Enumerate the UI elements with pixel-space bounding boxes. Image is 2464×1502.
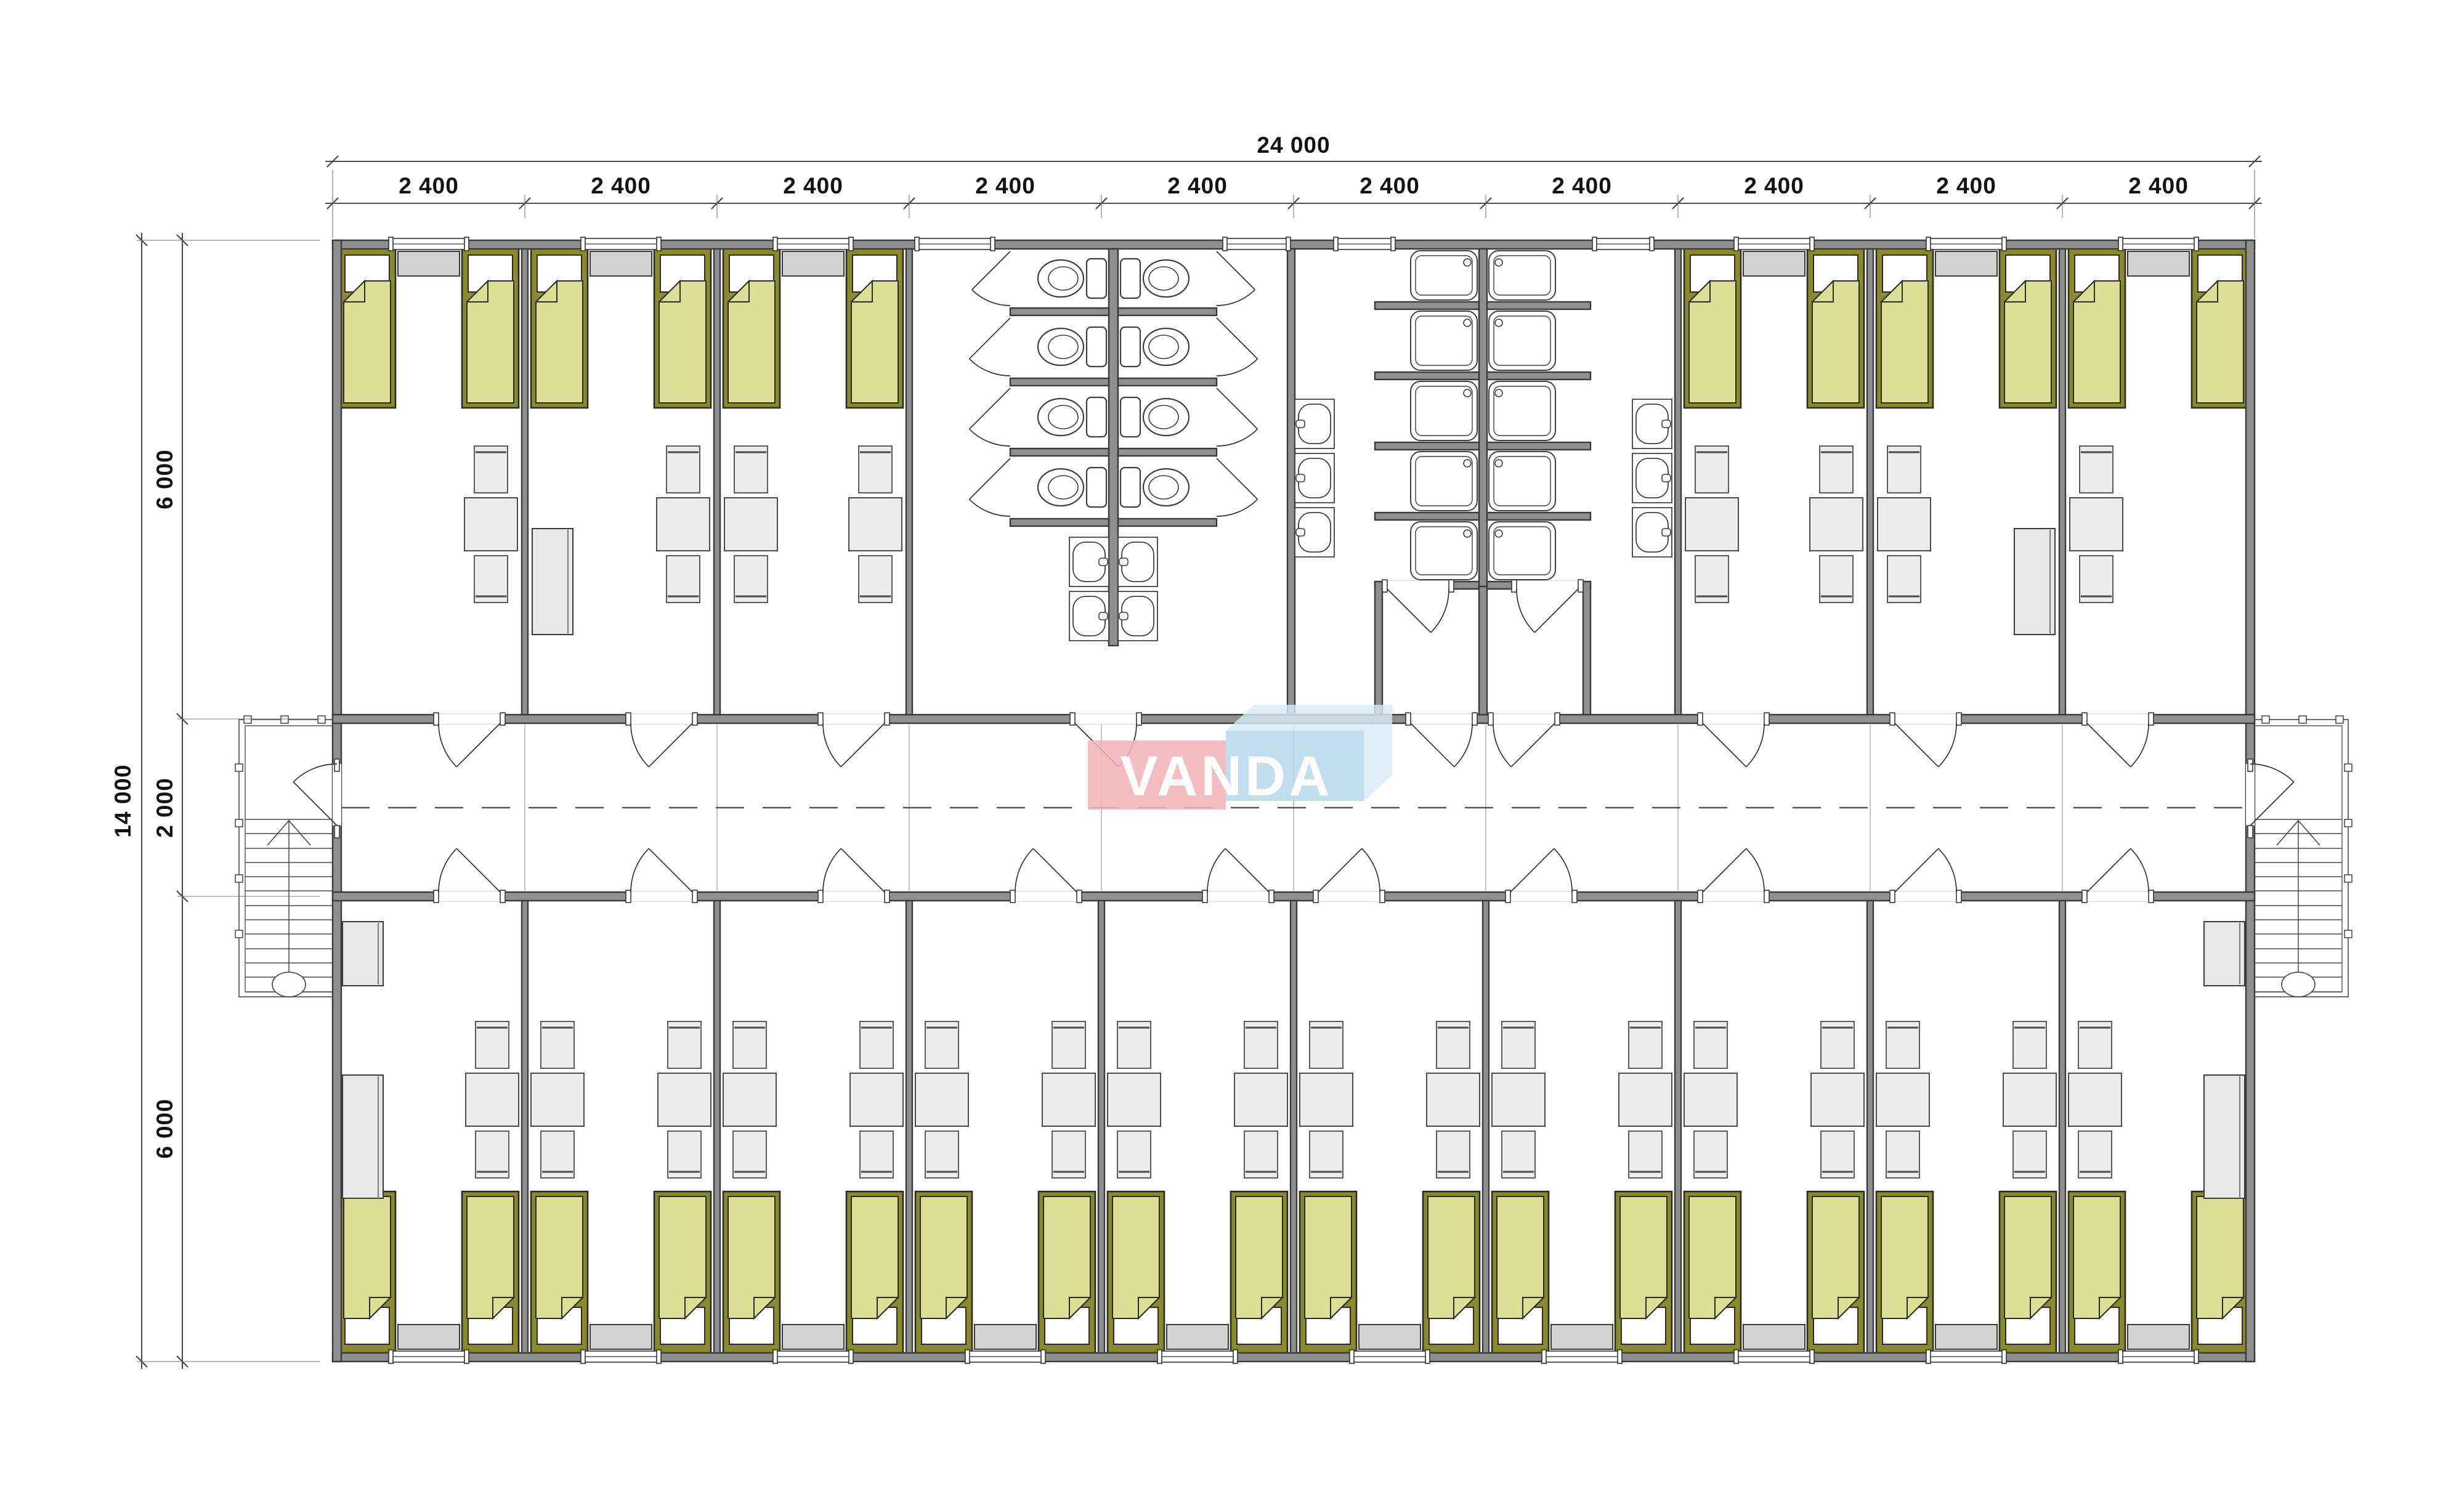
chair xyxy=(541,1131,574,1178)
door-leaf xyxy=(1217,318,1257,359)
door-leaf xyxy=(1225,848,1269,892)
door-jamb xyxy=(1512,580,1517,592)
door-jamb xyxy=(500,713,505,725)
door-jamb xyxy=(434,890,439,903)
door-opening xyxy=(1895,891,1956,901)
stair-post xyxy=(235,930,243,938)
door-jamb xyxy=(1472,713,1477,725)
door-swing-arc xyxy=(2131,723,2149,767)
window-jamb xyxy=(1542,1350,1546,1363)
bed xyxy=(1684,246,1741,408)
partition-wall-bottom xyxy=(1291,901,1297,1353)
door-opening xyxy=(1493,714,1555,724)
partition-wall-top xyxy=(714,249,720,715)
door-leaf xyxy=(970,458,1010,499)
shower-tray xyxy=(1411,452,1477,511)
chair xyxy=(1052,1021,1085,1068)
wash-basin xyxy=(1632,508,1672,557)
wash-basin xyxy=(1632,453,1672,503)
stair-newel-circle xyxy=(272,972,306,997)
table xyxy=(657,498,710,551)
dimension-label: 2 400 xyxy=(1744,173,1804,198)
window-jamb xyxy=(1350,1350,1354,1363)
chair xyxy=(1695,446,1728,493)
door-leaf xyxy=(970,318,1010,359)
bed xyxy=(1423,1191,1480,1353)
window-jamb xyxy=(2194,1350,2199,1363)
bed xyxy=(846,246,903,408)
stair-post xyxy=(2344,764,2352,771)
dimension-label: 6 000 xyxy=(152,1098,177,1159)
radiator xyxy=(1743,251,1805,276)
bed xyxy=(723,246,780,408)
door-jamb xyxy=(1698,890,1703,903)
window xyxy=(2118,1350,2199,1363)
wc-shower-dividing-wall xyxy=(1287,249,1295,715)
chair xyxy=(1820,446,1853,493)
chair xyxy=(1117,1021,1151,1068)
radiator xyxy=(782,251,844,276)
shower-divider-wall xyxy=(1375,442,1479,450)
door-jamb xyxy=(1956,713,1961,725)
window-jamb xyxy=(849,237,853,251)
door-opening xyxy=(1895,714,1956,724)
vestibule-wall xyxy=(1583,582,1591,715)
shower-tray xyxy=(1411,311,1477,370)
stair-post xyxy=(2344,819,2352,827)
floor-plan-canvas: 24 0002 4002 4002 4002 4002 4002 4002 40… xyxy=(0,0,2464,1502)
wardrobe-body xyxy=(342,922,383,986)
door-swing-arc xyxy=(293,764,337,782)
window xyxy=(581,237,661,251)
door-swing-arc xyxy=(439,723,456,767)
bed xyxy=(654,1191,711,1353)
door-jamb xyxy=(1578,580,1583,592)
bed xyxy=(1807,246,1864,408)
table xyxy=(2070,498,2123,551)
door-jamb xyxy=(2248,826,2253,838)
window-jamb xyxy=(2118,1350,2123,1363)
door-jamb xyxy=(1506,890,1510,903)
door-jamb xyxy=(885,890,890,903)
radiator xyxy=(1359,1325,1420,1349)
door-opening xyxy=(1075,714,1137,724)
door-swing-arc xyxy=(970,359,1010,376)
partition-wall-bottom xyxy=(1483,901,1489,1353)
door-swing-arc xyxy=(1517,589,1534,633)
toilet-bowl xyxy=(1143,399,1189,436)
door-jamb xyxy=(1555,713,1560,725)
chair xyxy=(1502,1131,1535,1178)
door-leaf xyxy=(1703,723,1746,767)
door-opening xyxy=(2087,714,2149,724)
table xyxy=(464,498,517,551)
door-swing-arc xyxy=(1015,848,1033,892)
window-jamb xyxy=(1041,1350,1045,1363)
wardrobe-body xyxy=(532,529,573,635)
stair-enclosure-outer xyxy=(239,720,333,997)
chair xyxy=(1437,1021,1470,1068)
window xyxy=(1926,1350,2006,1363)
window xyxy=(1157,1350,1238,1363)
dimension-label: 2 400 xyxy=(975,173,1035,198)
door-leaf xyxy=(456,723,500,767)
table xyxy=(724,498,777,551)
window-jamb xyxy=(2002,1350,2006,1363)
window-jamb xyxy=(464,237,469,251)
bed xyxy=(531,1191,588,1353)
window-jamb xyxy=(849,1350,853,1363)
bed xyxy=(1684,1191,1741,1353)
door-swing-arc xyxy=(1217,429,1257,446)
dimension-label: 2 000 xyxy=(152,777,177,838)
window-jamb xyxy=(1810,237,1814,251)
toilet-cistern xyxy=(1121,259,1140,298)
door-swing-arc xyxy=(972,290,1010,306)
toilet-cistern xyxy=(1121,327,1140,367)
radiator xyxy=(1935,1325,1997,1349)
shower-divider-wall xyxy=(1487,442,1591,450)
chair xyxy=(1887,446,1921,493)
window xyxy=(1926,237,2006,251)
door-swing-arc xyxy=(823,723,841,767)
bed xyxy=(1615,1191,1672,1353)
chair xyxy=(1310,1131,1343,1178)
door-opening xyxy=(1510,891,1572,901)
window-jamb xyxy=(1233,1350,1238,1363)
wardrobe-body xyxy=(342,1075,383,1198)
vestibule-center-wall xyxy=(1479,587,1487,715)
window-jamb xyxy=(1223,237,1227,251)
table xyxy=(1042,1073,1095,1126)
window xyxy=(389,1350,469,1363)
toilet-bowl xyxy=(1143,328,1189,365)
window-jamb xyxy=(915,237,919,251)
door-swing-arc xyxy=(2250,764,2294,782)
wash-basin xyxy=(1632,399,1672,449)
door-leaf xyxy=(649,848,692,892)
window-jamb xyxy=(1157,1350,1162,1363)
shower-tray xyxy=(1489,311,1555,370)
wc-stall-wall xyxy=(1010,378,1109,386)
wardrobe xyxy=(2204,922,2245,986)
window xyxy=(965,1350,1045,1363)
bed xyxy=(2069,246,2125,408)
door-jamb xyxy=(818,890,823,903)
chair xyxy=(860,1131,893,1178)
door-swing-arc xyxy=(631,848,649,892)
wc-stall-wall xyxy=(1118,449,1217,456)
door-leaf xyxy=(1033,848,1077,892)
radiator xyxy=(398,251,460,276)
door-jamb xyxy=(2149,890,2154,903)
chair xyxy=(1694,1131,1727,1178)
door-jamb xyxy=(1698,713,1703,725)
stair-enclosure-outer xyxy=(2255,720,2348,997)
door-jamb xyxy=(1382,580,1387,592)
door-swing-arc xyxy=(970,429,1010,446)
shower-tray xyxy=(1489,381,1555,440)
stair-post xyxy=(318,716,325,723)
wardrobe-body xyxy=(2204,922,2245,986)
door-opening xyxy=(439,714,500,724)
door-leaf xyxy=(1703,848,1746,892)
chair xyxy=(476,1021,509,1068)
chair xyxy=(2013,1131,2046,1178)
logo-text: VANDA xyxy=(1120,745,1332,808)
partition-wall-top xyxy=(906,249,912,715)
door-jamb xyxy=(1488,713,1493,725)
stair-post xyxy=(2344,875,2352,882)
partition-wall-top xyxy=(1675,249,1681,715)
chair xyxy=(1695,556,1728,603)
window xyxy=(1350,1350,1430,1363)
basin-tap xyxy=(1119,558,1128,566)
partition-wall-bottom xyxy=(2059,901,2065,1353)
wardrobe xyxy=(342,922,383,986)
door-swing-arc xyxy=(1217,359,1257,376)
door-opening xyxy=(631,714,692,724)
door-leaf xyxy=(1511,723,1555,767)
toilet-cistern xyxy=(1121,397,1140,437)
toilet-cistern xyxy=(1087,327,1106,367)
chair xyxy=(1629,1021,1662,1068)
stair-post xyxy=(2344,930,2352,938)
shower-divider-wall xyxy=(1487,372,1591,380)
bed xyxy=(2069,1191,2125,1353)
chair xyxy=(2078,1021,2112,1068)
wardrobe xyxy=(532,529,573,635)
wc-stall-wall xyxy=(1118,378,1217,386)
wardrobe-body xyxy=(2014,529,2055,635)
window-jamb xyxy=(581,1350,585,1363)
wc-plumbing-wall xyxy=(1109,249,1118,646)
table xyxy=(1492,1073,1545,1126)
shower-divider-wall xyxy=(1487,302,1591,309)
wardrobe xyxy=(342,1075,383,1198)
chair xyxy=(1502,1021,1535,1068)
partition-wall-bottom xyxy=(714,901,720,1353)
door-leaf xyxy=(1411,723,1454,767)
window xyxy=(389,237,469,251)
window-jamb xyxy=(657,237,661,251)
door-jamb xyxy=(818,713,823,725)
toilet-cistern xyxy=(1087,259,1106,298)
window-jamb xyxy=(1425,1350,1430,1363)
door-opening xyxy=(823,714,885,724)
wash-basin xyxy=(1118,537,1157,587)
chair xyxy=(1629,1131,1662,1178)
stair-post xyxy=(235,819,243,827)
door-swing-arc xyxy=(823,848,841,892)
door-swing-arc xyxy=(1454,723,1472,767)
chair xyxy=(1820,556,1853,603)
toilet-bowl xyxy=(1143,260,1189,297)
door-leaf xyxy=(1217,388,1257,429)
bed xyxy=(723,1191,780,1353)
basin-tap xyxy=(1662,420,1671,428)
door-leaf xyxy=(970,388,1010,429)
window-jamb xyxy=(1592,237,1597,251)
chair xyxy=(1117,1131,1151,1178)
partition-wall-bottom xyxy=(1675,901,1681,1353)
table xyxy=(1619,1073,1672,1126)
chair xyxy=(925,1131,958,1178)
door-opening xyxy=(1015,891,1077,901)
bed xyxy=(462,1191,519,1353)
table xyxy=(1108,1073,1161,1126)
door-opening xyxy=(2087,891,2149,901)
door-swing-arc xyxy=(1431,589,1449,633)
chair xyxy=(476,1131,509,1178)
door-jamb xyxy=(1890,890,1895,903)
door-opening xyxy=(1207,891,1269,901)
bed xyxy=(1108,1191,1164,1353)
stair-post xyxy=(281,716,288,723)
table xyxy=(531,1073,584,1126)
partition-wall-bottom xyxy=(522,901,528,1353)
window xyxy=(581,1350,661,1363)
door-jamb xyxy=(2082,713,2087,725)
door-opening xyxy=(1411,714,1472,724)
window-jamb xyxy=(1650,237,1654,251)
window xyxy=(1223,237,1291,251)
door-leaf xyxy=(1895,723,1939,767)
door-jamb xyxy=(692,890,697,903)
shower-divider-wall xyxy=(1375,372,1479,380)
window-jamb xyxy=(1926,1350,1931,1363)
partition-wall-top xyxy=(522,249,528,715)
door-leaf xyxy=(649,723,692,767)
chair xyxy=(2078,1131,2112,1178)
vestibule-wall xyxy=(1375,582,1382,715)
chair xyxy=(860,1021,893,1068)
window xyxy=(1734,237,1814,251)
basin-tap xyxy=(1296,420,1305,428)
radiator xyxy=(590,251,652,276)
stair-newel-circle xyxy=(2282,972,2315,997)
door-opening xyxy=(1703,714,1764,724)
partition-wall-top xyxy=(1867,249,1873,715)
window-jamb xyxy=(1391,237,1395,251)
shower-divider-wall xyxy=(1487,513,1591,520)
dimension-label: 2 400 xyxy=(2128,173,2189,198)
radiator xyxy=(1743,1325,1805,1349)
door-jamb xyxy=(334,759,339,771)
bed xyxy=(654,246,711,408)
table xyxy=(1684,1073,1737,1126)
wardrobe xyxy=(2204,1075,2245,1198)
shower-tray xyxy=(1489,522,1555,580)
door-leaf xyxy=(1510,848,1554,892)
chair xyxy=(1694,1021,1727,1068)
window xyxy=(773,237,853,251)
door-leaf xyxy=(841,848,885,892)
basin-tap xyxy=(1119,612,1128,620)
window-jamb xyxy=(2002,237,2006,251)
staircase xyxy=(2255,716,2352,997)
shower-tray xyxy=(1411,381,1477,440)
door-jamb xyxy=(1269,890,1274,903)
dimension-label: 2 400 xyxy=(1552,173,1612,198)
window xyxy=(773,1350,853,1363)
wash-basin xyxy=(1295,508,1334,557)
table xyxy=(1234,1073,1287,1126)
chair xyxy=(2080,556,2113,603)
window-jamb xyxy=(2194,237,2199,251)
table xyxy=(1685,498,1738,551)
window-jamb xyxy=(1618,1350,1622,1363)
window xyxy=(1334,237,1395,251)
dimension-label: 2 400 xyxy=(1936,173,1996,198)
window-jamb xyxy=(1334,237,1338,251)
wardrobe-body xyxy=(2204,1075,2245,1198)
radiator xyxy=(2128,1325,2189,1349)
chair xyxy=(667,556,700,603)
table xyxy=(723,1073,776,1126)
window-jamb xyxy=(773,1350,777,1363)
table xyxy=(1878,498,1931,551)
dimension-label: 6 000 xyxy=(152,449,177,509)
basin-tap xyxy=(1296,474,1305,482)
wardrobe xyxy=(2014,529,2055,635)
bed xyxy=(462,246,519,408)
toilet-bowl xyxy=(1038,328,1084,365)
door-leaf xyxy=(2087,723,2131,767)
stair-post xyxy=(2262,716,2269,723)
partition-wall-bottom xyxy=(906,901,912,1353)
radiator xyxy=(782,1325,844,1349)
chair xyxy=(667,446,700,493)
door-jamb xyxy=(1077,890,1082,903)
bed xyxy=(846,1191,903,1353)
door-swing-arc xyxy=(439,848,456,892)
chair xyxy=(1886,1021,1919,1068)
logo-cube-top-face xyxy=(1226,705,1392,731)
shower-tray xyxy=(1489,251,1555,300)
door-swing-arc xyxy=(1939,723,1956,767)
table xyxy=(2069,1073,2122,1126)
door-jamb xyxy=(2149,713,2154,725)
radiator xyxy=(2128,251,2189,276)
dimension-label: 2 400 xyxy=(591,173,651,198)
partition-wall-bottom xyxy=(1098,901,1104,1353)
chair xyxy=(734,556,768,603)
door-swing-arc xyxy=(1362,848,1380,892)
bed xyxy=(2192,1191,2248,1353)
dimension-label: 2 400 xyxy=(399,173,459,198)
radiator xyxy=(1551,1325,1613,1349)
shower-tray xyxy=(1411,251,1477,300)
bed xyxy=(1876,246,1933,408)
partition-wall-bottom xyxy=(1867,901,1873,1353)
chair xyxy=(2080,446,2113,493)
stair-post xyxy=(244,716,251,723)
window-jamb xyxy=(1926,237,1931,251)
window-jamb xyxy=(1734,237,1738,251)
door-leaf xyxy=(1318,848,1362,892)
table xyxy=(850,1073,903,1126)
bed xyxy=(339,1191,395,1353)
bed xyxy=(1492,1191,1549,1353)
window xyxy=(1592,237,1654,251)
basin-tap xyxy=(1099,612,1108,620)
door-jamb xyxy=(626,713,631,725)
door-leaf xyxy=(1534,589,1578,633)
door-leaf xyxy=(1387,589,1431,633)
bed xyxy=(1876,1191,1933,1353)
chair xyxy=(925,1021,958,1068)
